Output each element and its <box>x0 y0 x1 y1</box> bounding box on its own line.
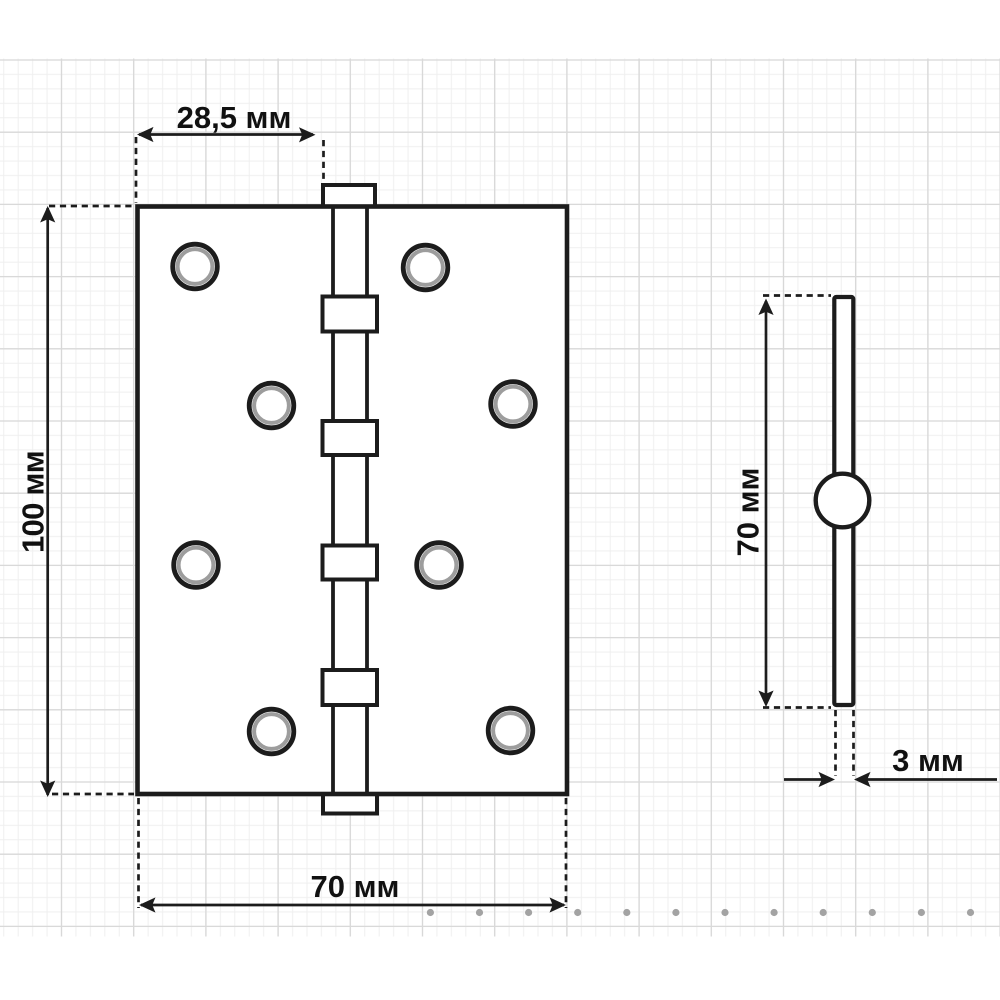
svg-text:100 мм: 100 мм <box>16 451 51 553</box>
svg-text:70 мм: 70 мм <box>311 869 400 904</box>
svg-text:70 мм: 70 мм <box>731 468 766 557</box>
svg-text:28,5 мм: 28,5 мм <box>177 100 292 135</box>
svg-text:3 мм: 3 мм <box>892 743 964 778</box>
